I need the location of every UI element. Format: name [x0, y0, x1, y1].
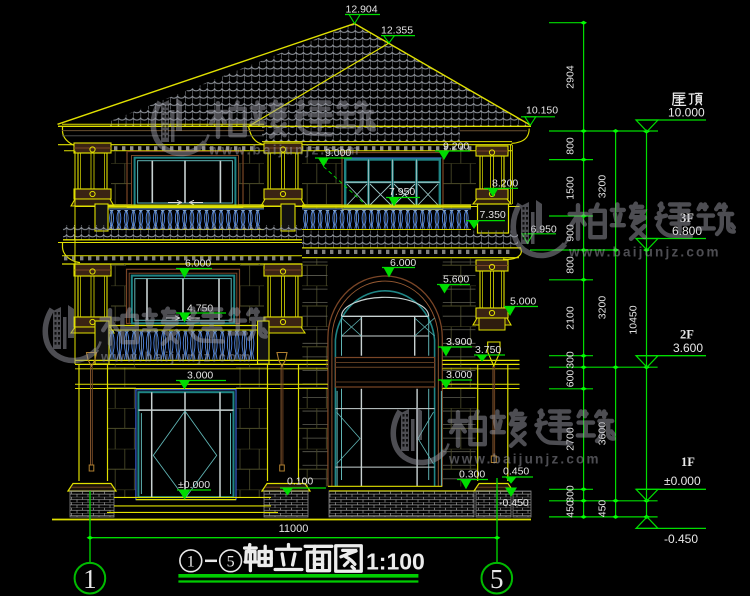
svg-text:1F: 1F: [681, 455, 695, 469]
svg-text:10.150: 10.150: [526, 105, 558, 117]
svg-text:5.600: 5.600: [443, 274, 469, 286]
svg-text:8.200: 8.200: [492, 177, 518, 189]
svg-text:450: 450: [565, 500, 577, 518]
svg-text:300: 300: [565, 351, 577, 369]
svg-text:7.350: 7.350: [480, 209, 506, 221]
svg-text:1: 1: [187, 554, 195, 571]
svg-text:0.100: 0.100: [287, 476, 313, 488]
svg-text:2904: 2904: [565, 65, 577, 89]
svg-text:0.450: 0.450: [503, 466, 529, 478]
svg-text:3200: 3200: [597, 296, 609, 320]
svg-text:10.000: 10.000: [668, 106, 705, 120]
svg-text:www.baijunjz.com: www.baijunjz.com: [448, 452, 601, 467]
svg-text:0.300: 0.300: [459, 469, 485, 481]
svg-text:2F: 2F: [680, 328, 694, 342]
svg-text:10450: 10450: [628, 305, 640, 334]
svg-text:6.000: 6.000: [185, 258, 211, 270]
svg-text:1: 1: [83, 564, 97, 594]
svg-text:±0.000: ±0.000: [178, 479, 210, 491]
svg-text:3.000: 3.000: [446, 369, 472, 381]
svg-text:12.355: 12.355: [381, 25, 413, 37]
svg-text:www.baijunjz.com: www.baijunjz.com: [568, 245, 721, 260]
svg-text:2100: 2100: [565, 306, 577, 330]
svg-text:12.904: 12.904: [346, 4, 378, 16]
svg-text:7.950: 7.950: [389, 186, 415, 198]
svg-text:±0.000: ±0.000: [664, 474, 701, 488]
svg-text:3200: 3200: [597, 175, 609, 199]
svg-text:450: 450: [597, 500, 609, 518]
svg-text:www.baijunjz.com: www.baijunjz.com: [100, 350, 253, 365]
svg-text:5.000: 5.000: [510, 296, 536, 308]
svg-text:3.000: 3.000: [187, 370, 213, 382]
svg-text:1:100: 1:100: [366, 549, 425, 575]
svg-text:www.baijunjz.com: www.baijunjz.com: [208, 143, 361, 158]
svg-text:300: 300: [565, 485, 577, 503]
svg-text:5: 5: [227, 554, 235, 571]
svg-text:5: 5: [490, 564, 504, 594]
svg-text:3.900: 3.900: [446, 336, 472, 348]
svg-text:-0.450: -0.450: [499, 497, 529, 509]
svg-text:1500: 1500: [565, 176, 577, 200]
svg-text:600: 600: [565, 370, 577, 388]
svg-text:-0.450: -0.450: [664, 532, 698, 546]
svg-text:800: 800: [565, 137, 577, 155]
svg-text:3.750: 3.750: [475, 344, 501, 356]
svg-text:3.600: 3.600: [673, 341, 703, 355]
svg-text:11000: 11000: [279, 523, 309, 535]
